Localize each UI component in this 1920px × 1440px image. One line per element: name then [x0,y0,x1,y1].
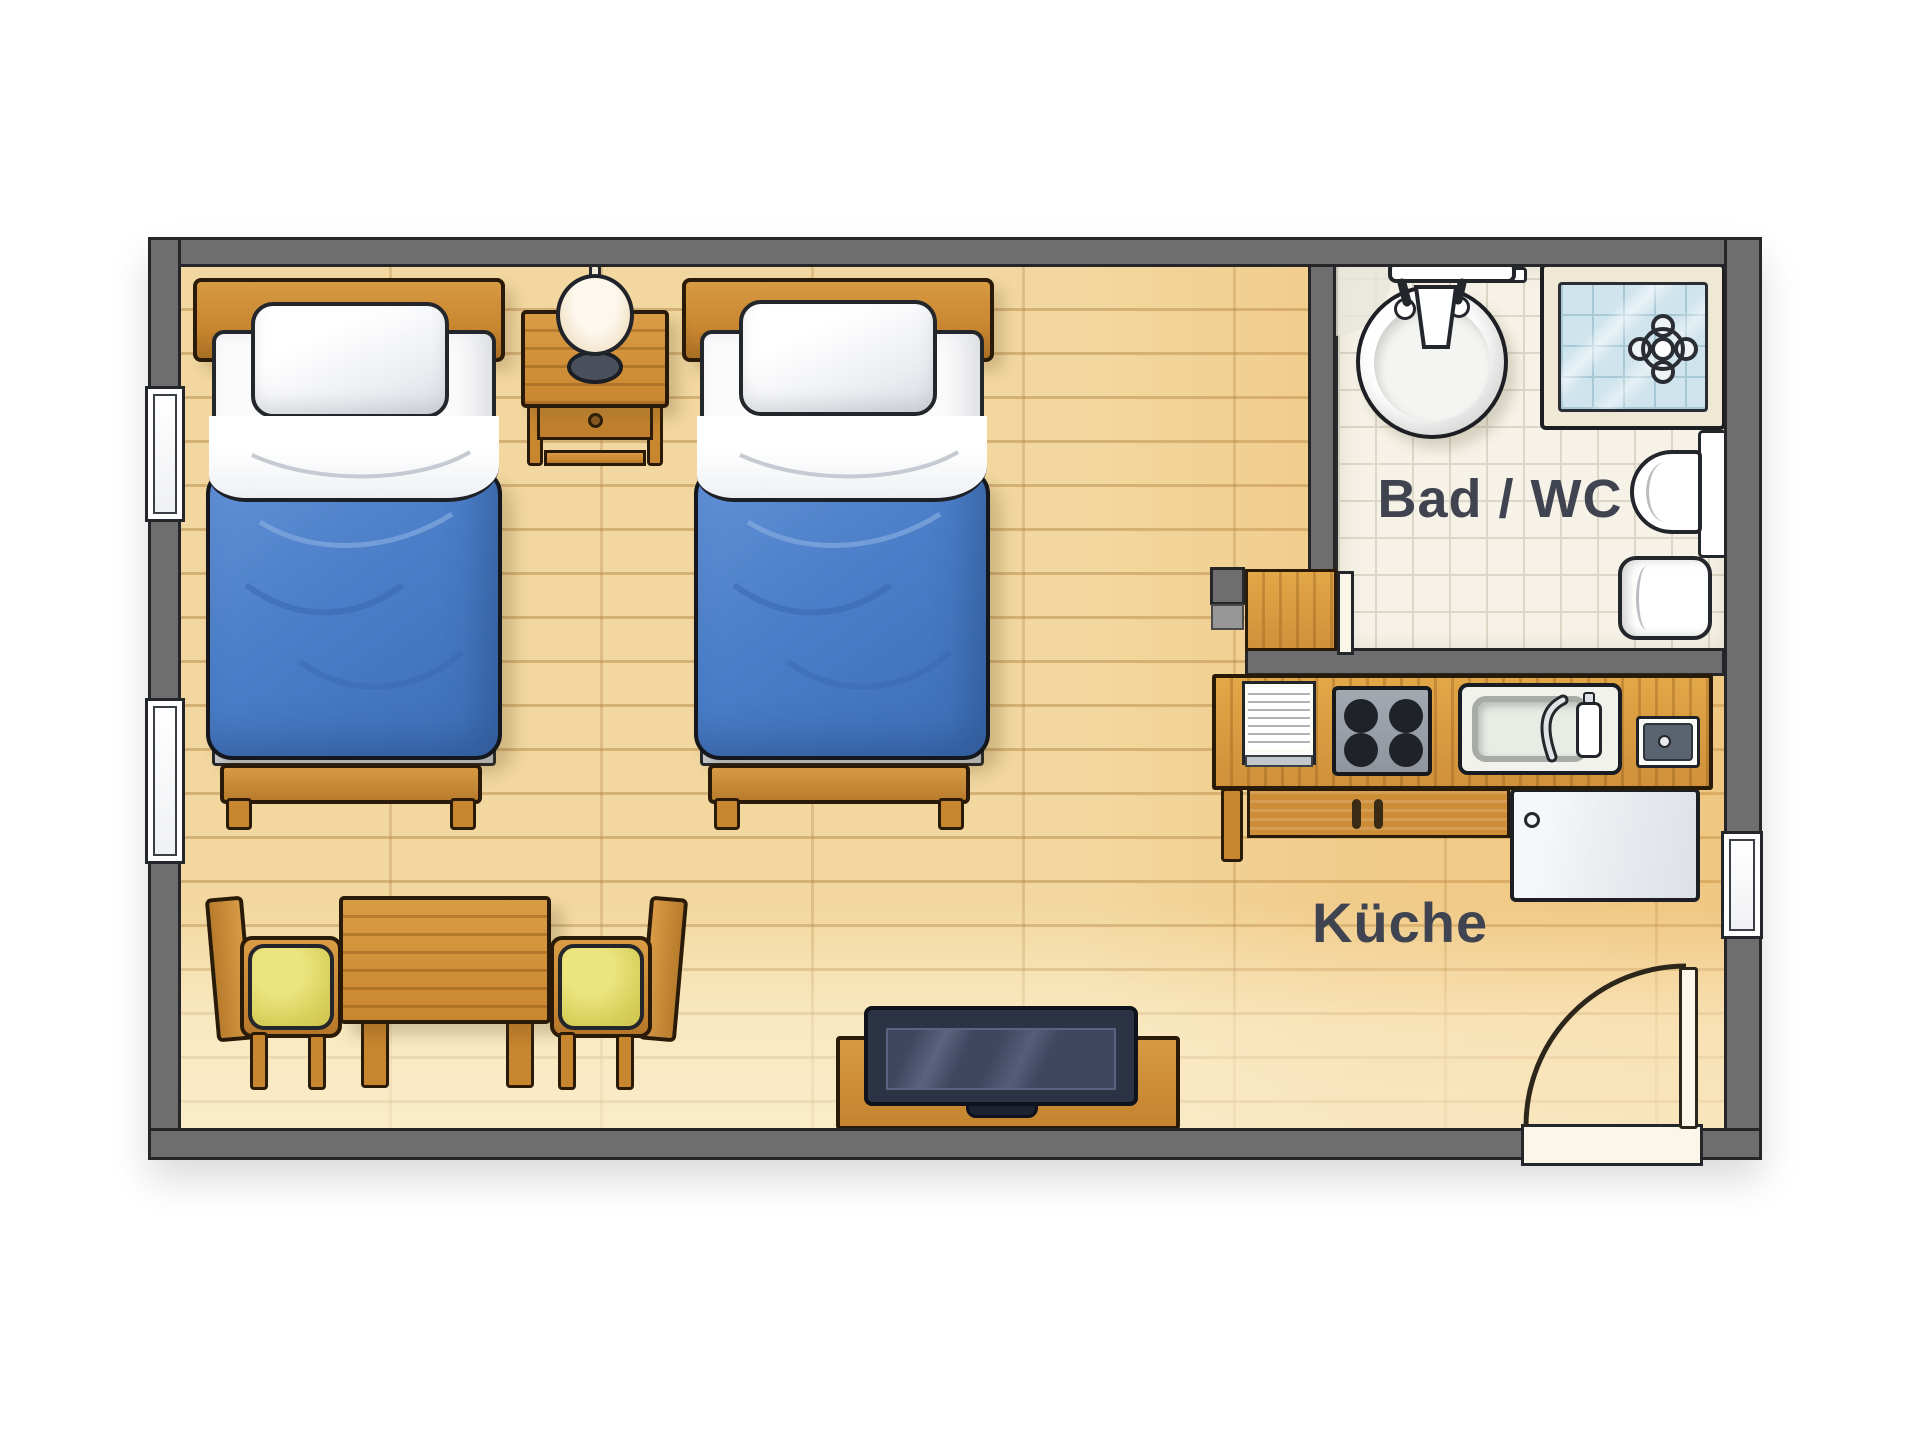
bath-faucet-handle-left [1394,298,1416,320]
nightstand-rail [544,450,646,466]
bed2-footboard [708,764,970,804]
wall-right [1724,237,1762,1160]
table-leg-right [506,1018,534,1088]
lamp-shade [556,274,634,356]
cabinet-handle-right [1374,799,1383,829]
door-opening [1521,1124,1703,1166]
nightstand-knob [588,413,603,428]
bed1-footboard [220,764,482,804]
window-pane [153,394,177,514]
dish-rack-tray [1245,755,1313,767]
chair2-leg-left [558,1032,576,1090]
bed1-pillow [251,302,449,418]
shower-glass [1558,282,1708,412]
kitchen-counter-upper [1245,569,1337,651]
kitchen-label: Küche [1312,890,1487,956]
bed1-leg-right [450,798,476,830]
tv-screen [886,1028,1116,1090]
window-pane [1729,839,1755,931]
cabinet-handle-left [1352,799,1361,829]
chair1-leg-left [250,1032,268,1090]
bed1-blanket [206,468,502,760]
bidet-inner-line [1636,566,1658,630]
fridge [1510,788,1700,902]
counter-leg [1221,788,1243,862]
chair2-leg-right [616,1034,634,1090]
toilet-bowl-inner [1646,462,1686,522]
stove-burner-4 [1389,733,1423,767]
kitchen-wall-stub-lower [1211,604,1244,630]
door-leaf [1679,967,1698,1129]
window-pane [153,706,177,856]
kitchen-sink-basin [1472,696,1588,762]
kitchen-wall-stub [1210,567,1245,605]
bed2-leg-left [714,798,740,830]
dish-rack-lines [1248,687,1310,749]
chair1-cushion [248,944,334,1030]
window-left-lower [145,698,185,864]
bath-sink-bowl [1374,305,1490,421]
small-appliance-knob [1658,735,1671,748]
chair1-leg-right [308,1034,326,1090]
bed2-blanket [694,468,990,760]
stove-burner-2 [1389,699,1423,733]
bidet [1618,556,1712,640]
bed2-pillow [739,300,937,416]
bed1-leg-left [226,798,252,830]
window-right [1721,831,1763,939]
table-leg-left [361,1018,389,1088]
wall-top [148,237,1762,267]
soap-bottle-cap [1583,692,1595,704]
soap-bottle [1576,702,1602,758]
fridge-handle [1524,812,1540,828]
bed2-leg-right [938,798,964,830]
window-left-upper [145,386,185,522]
bathroom-left-wall [1308,258,1336,573]
bathroom-door [1337,571,1354,655]
stove-burner-3 [1344,733,1378,767]
bed2-sheet-fold [697,416,987,502]
floorplan-canvas: Bad / WC Küche [0,0,1920,1440]
bathroom-label: Bad / WC [1375,466,1625,532]
bathroom-bottom-wall [1245,648,1725,676]
dining-table [339,896,551,1024]
stove-burner-1 [1344,699,1378,733]
chair2-cushion [558,944,644,1030]
wall-bottom [148,1128,1762,1160]
bed1-sheet-fold [209,416,499,502]
bath-faucet-handle-right [1448,296,1470,318]
